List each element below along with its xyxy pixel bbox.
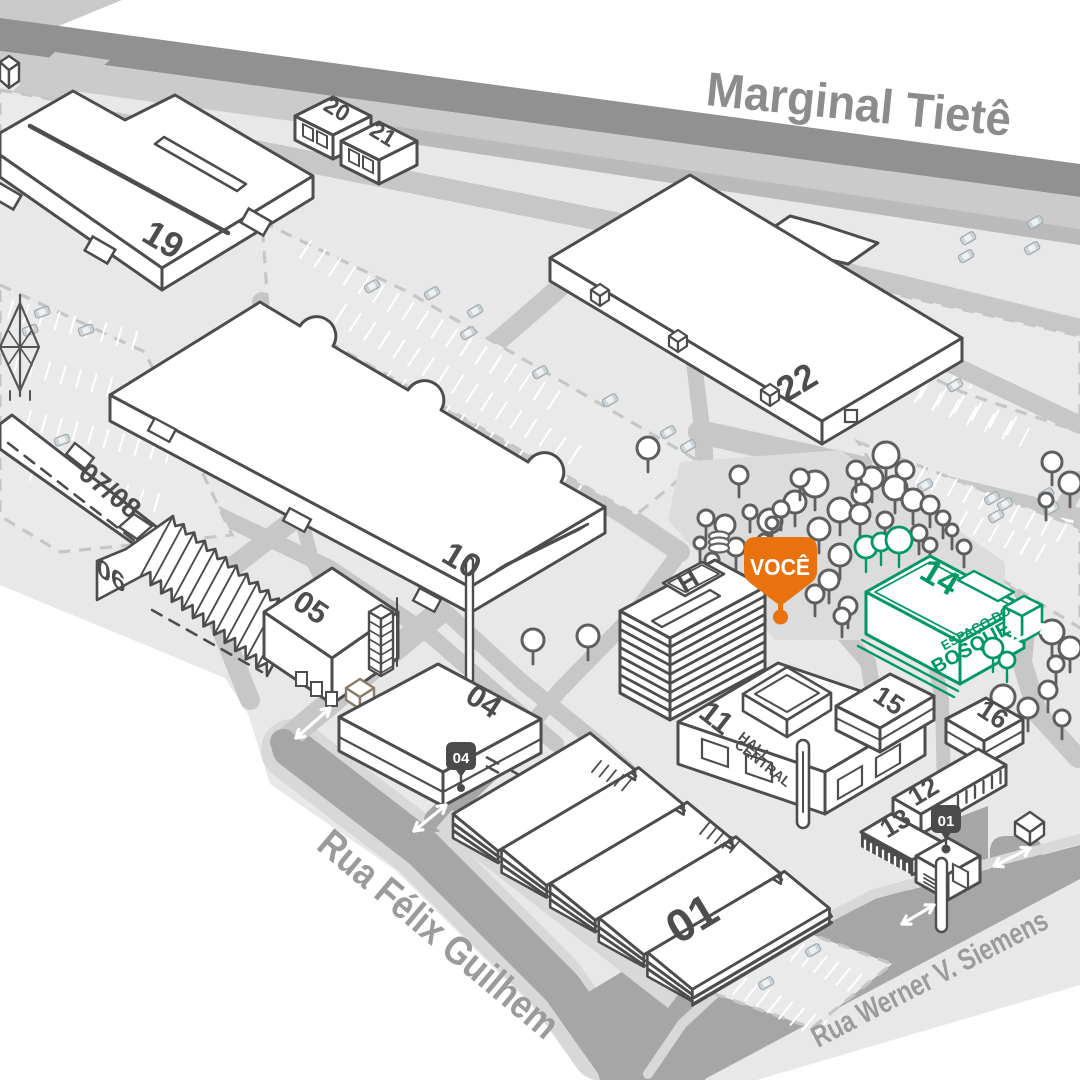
svg-text:VOCÊ: VOCÊ — [750, 553, 810, 580]
svg-text:01: 01 — [938, 813, 955, 830]
svg-text:04: 04 — [453, 750, 470, 767]
